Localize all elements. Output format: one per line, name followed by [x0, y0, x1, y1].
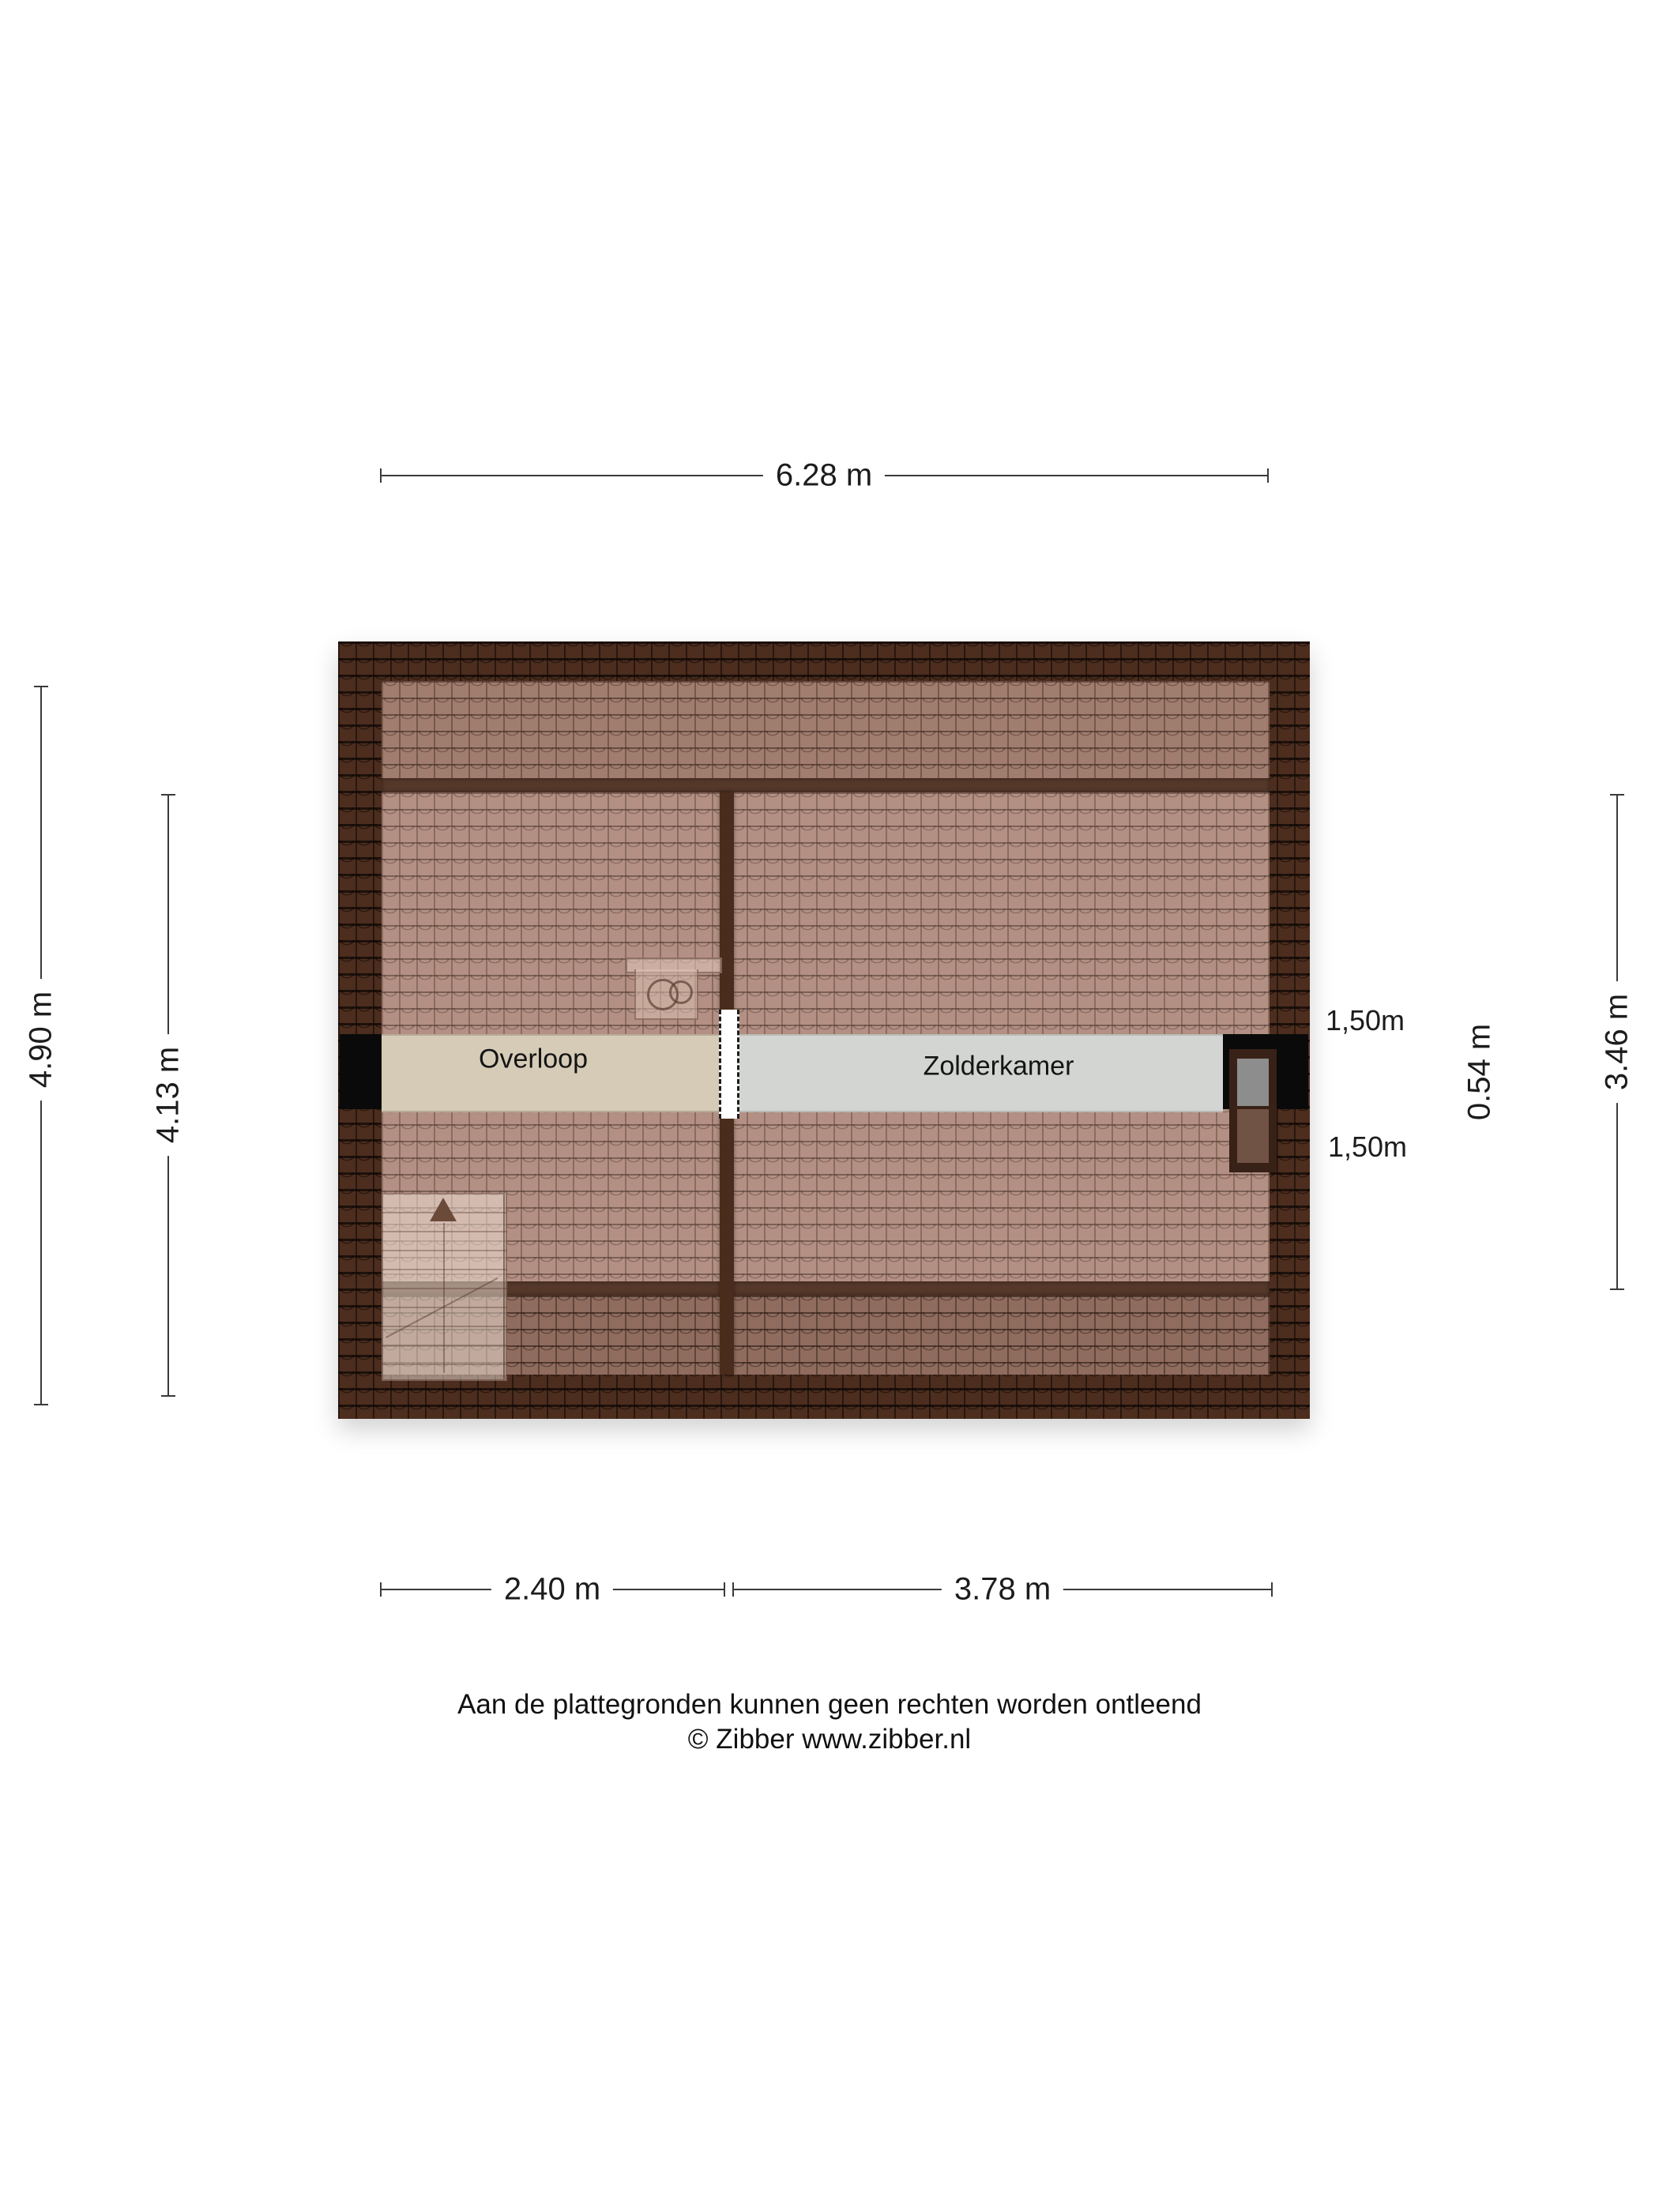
room-label-zolderkamer: Zolderkamer — [924, 1051, 1074, 1082]
dim-label-right-small: 0.54 m — [1461, 1011, 1499, 1133]
dormer-window-pane — [1237, 1059, 1269, 1106]
sink-fixture — [634, 969, 698, 1020]
dim-label-right-inner: 3.46 m — [1598, 981, 1637, 1103]
label-dormer-width-bottom: 1,50m — [1328, 1130, 1407, 1164]
roof-top-band — [382, 681, 1270, 778]
dim-label-left-inner: 4.13 m — [149, 1034, 188, 1156]
dim-label-top-width: 6.28 m — [763, 457, 885, 495]
floorplan-page: Overloop Zolderkamer 6.28 m 4.90 m 4.13 … — [0, 0, 1659, 2212]
dim-label-left-outer: 4.90 m — [22, 979, 61, 1100]
bottom-inner-wall-line — [382, 1281, 1270, 1296]
left-wall-segment — [340, 1034, 382, 1109]
attic-floorplan: Overloop Zolderkamer — [338, 641, 1310, 1419]
dim-label-bottom-right: 3.78 m — [942, 1571, 1063, 1609]
partition-wall-upper — [720, 792, 734, 1010]
dormer-window-lower-pane — [1237, 1109, 1269, 1163]
dim-label-bottom-left: 2.40 m — [491, 1571, 613, 1609]
door-opening — [719, 1010, 739, 1119]
staircase — [382, 1193, 507, 1381]
disclaimer-line: Aan de plattegronden kunnen geen rechten… — [0, 1689, 1659, 1721]
stairs-direction-line — [443, 1223, 445, 1373]
label-dormer-width-top: 1,50m — [1326, 1004, 1405, 1037]
copyright-line: © Zibber www.zibber.nl — [0, 1724, 1659, 1755]
top-inner-wall-line — [382, 778, 1270, 792]
roof-lower-band — [382, 1296, 1270, 1375]
sink-basin-small-icon — [669, 980, 693, 1004]
partition-wall-lower — [720, 1119, 734, 1375]
room-label-overloop: Overloop — [479, 1044, 588, 1075]
dormer-window-frame — [1229, 1049, 1277, 1172]
stairs-up-arrow-icon — [430, 1198, 457, 1221]
stairs-winder-line — [386, 1277, 498, 1338]
